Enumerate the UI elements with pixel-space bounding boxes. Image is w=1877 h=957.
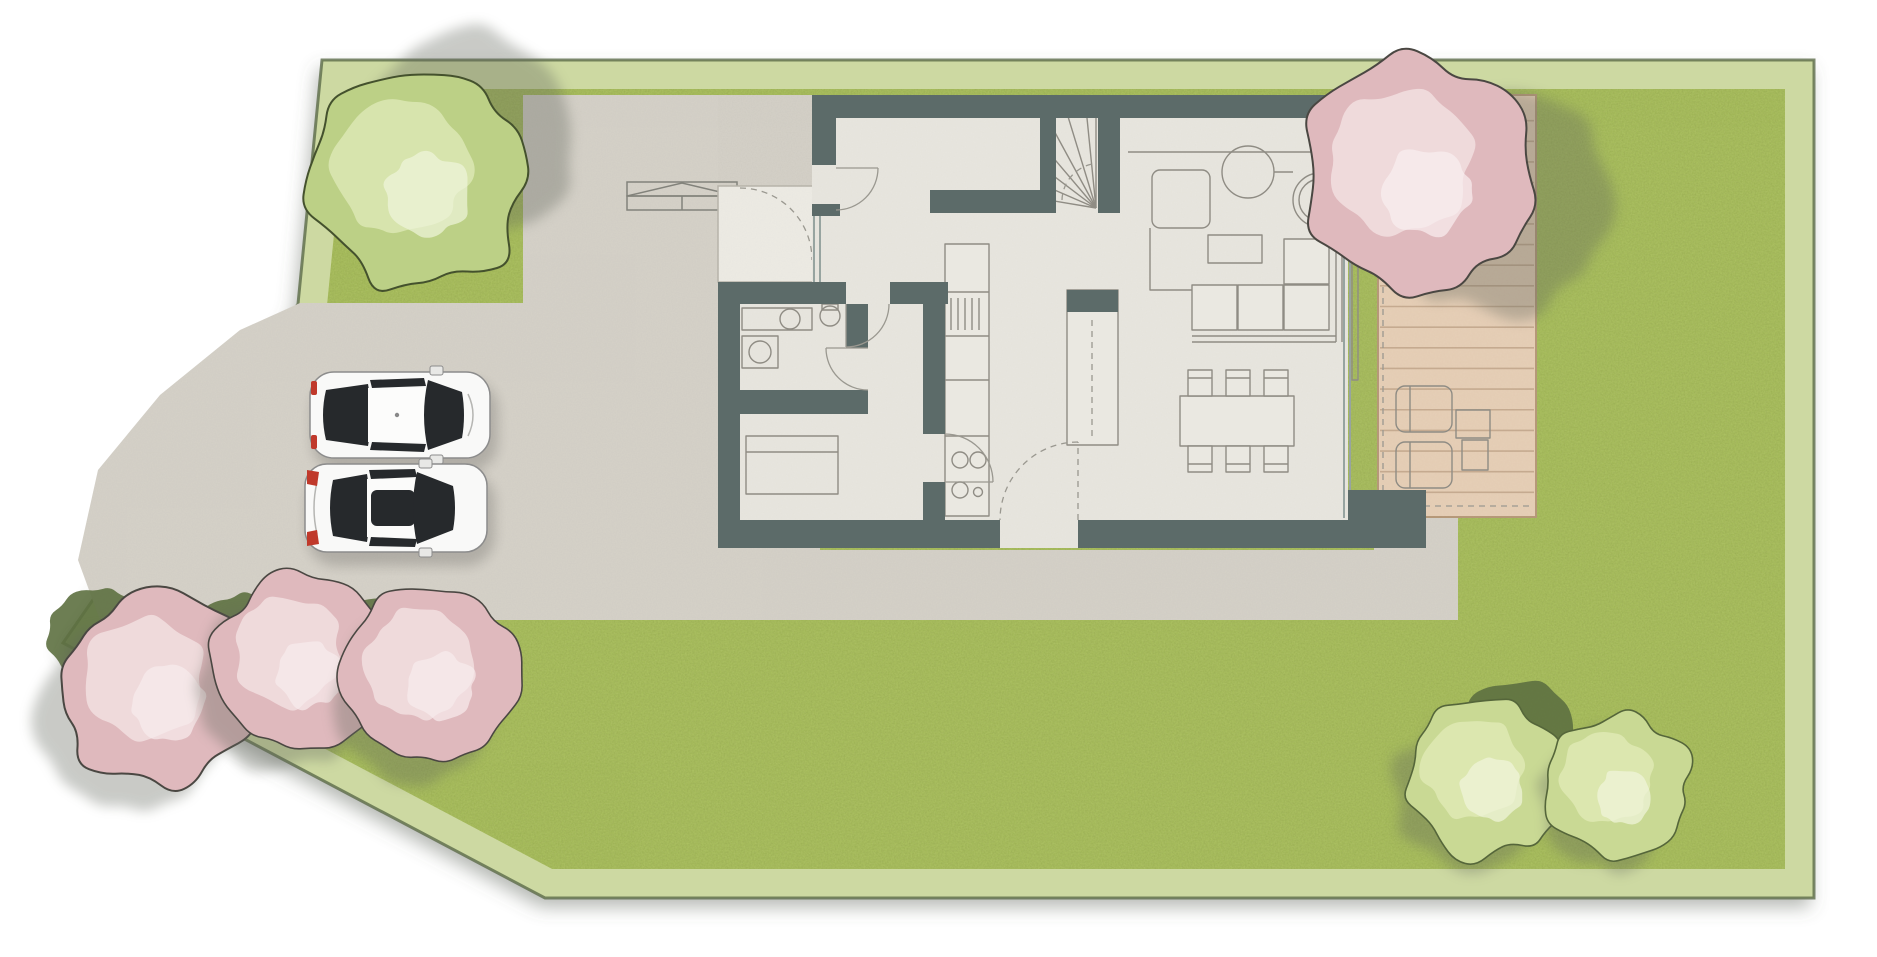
sunroof — [371, 490, 415, 526]
car-hatchback-white — [310, 366, 498, 472]
rear-window — [330, 474, 370, 542]
mirror-left — [419, 459, 432, 468]
taillight — [311, 381, 317, 395]
mirror-right — [419, 548, 432, 557]
mirror-left — [430, 366, 443, 375]
site-plan — [0, 0, 1877, 957]
taillight — [307, 470, 319, 486]
terrace-wall-stub-bottom-over — [1348, 490, 1426, 548]
taillight — [311, 435, 317, 449]
dining-set — [1180, 370, 1294, 472]
taillight — [307, 530, 319, 546]
site-plan-canvas — [0, 0, 1877, 957]
rear-window — [323, 384, 371, 446]
parked-cars — [305, 366, 498, 566]
car-sedan-white — [305, 459, 495, 566]
dining-table — [1180, 396, 1294, 446]
antenna — [395, 413, 399, 417]
kitchen-island — [1067, 290, 1118, 445]
